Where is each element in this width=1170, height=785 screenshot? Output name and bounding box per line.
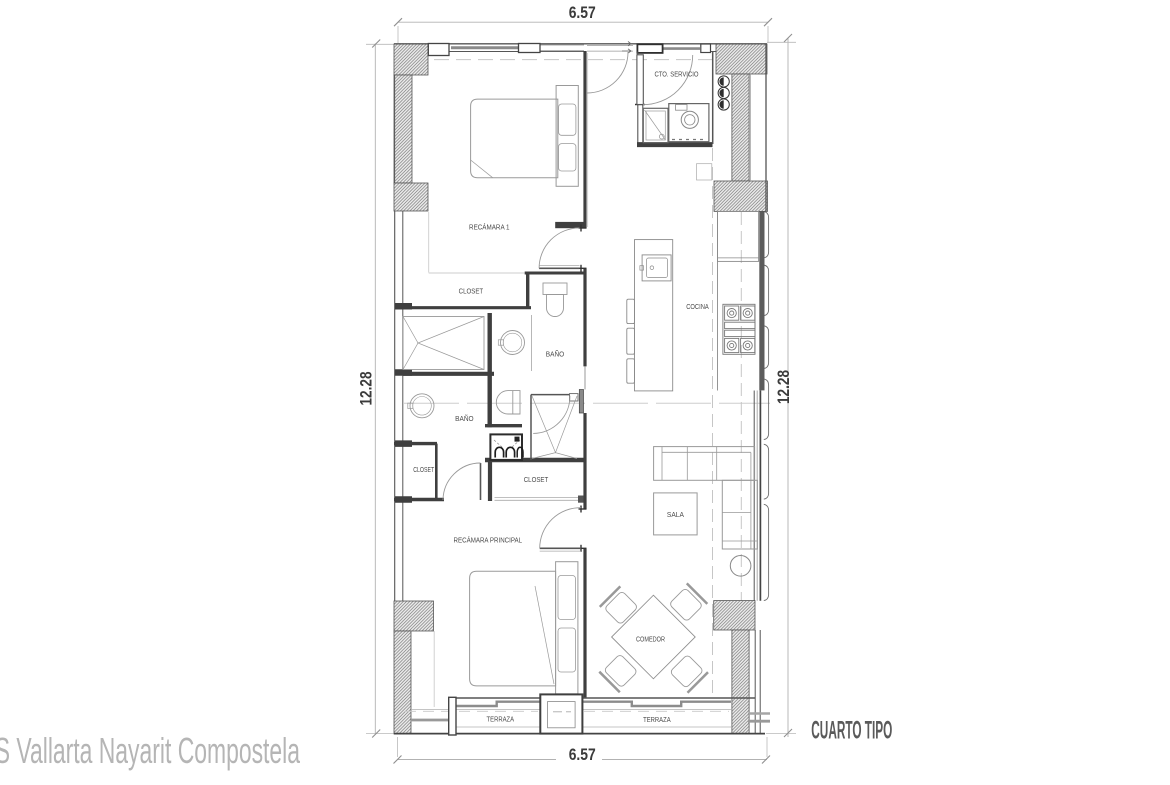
svg-text:BAÑO: BAÑO xyxy=(455,414,474,423)
svg-text:CUARTO TIPO: CUARTO TIPO xyxy=(811,717,892,745)
svg-text:CLOSET: CLOSET xyxy=(524,475,549,484)
svg-text:BAÑO: BAÑO xyxy=(546,350,565,359)
svg-text:SALA: SALA xyxy=(667,510,685,519)
svg-text:12.28: 12.28 xyxy=(358,372,376,406)
svg-text:TERRAZA: TERRAZA xyxy=(643,715,671,724)
svg-text:TERRAZA: TERRAZA xyxy=(487,715,515,724)
svg-text:CLOSET: CLOSET xyxy=(413,465,434,474)
svg-text:RECÁMARA PRINCIPAL: RECÁMARA PRINCIPAL xyxy=(454,535,523,544)
svg-text:CLOSET: CLOSET xyxy=(459,286,484,295)
svg-text:6.57: 6.57 xyxy=(569,745,596,764)
svg-text:RECÁMARA 1: RECÁMARA 1 xyxy=(469,222,510,231)
svg-text:6.57: 6.57 xyxy=(569,3,596,22)
svg-text:12.28: 12.28 xyxy=(775,370,793,404)
svg-text:COMEDOR: COMEDOR xyxy=(636,635,665,644)
svg-text:COCINA: COCINA xyxy=(686,302,709,311)
svg-text:LS Vallarta Nayarit Compostela: LS Vallarta Nayarit Compostela xyxy=(0,730,301,771)
svg-text:CTO. SERVICIO: CTO. SERVICIO xyxy=(655,70,699,79)
